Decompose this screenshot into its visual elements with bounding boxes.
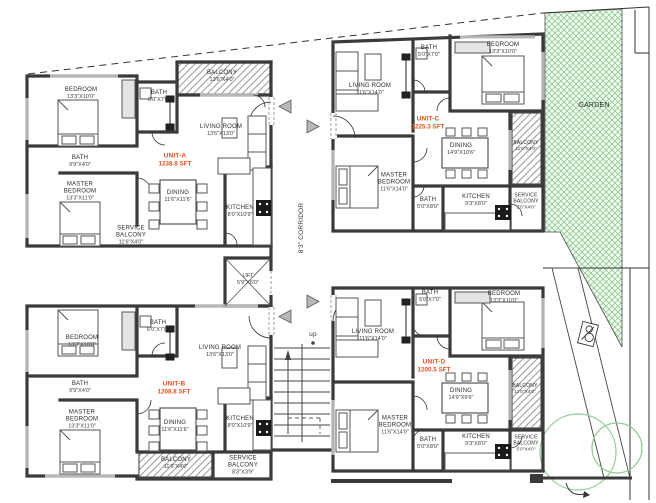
balcony-unit-d <box>512 358 541 428</box>
dining-table <box>442 128 488 178</box>
dining-table <box>442 373 488 423</box>
bed <box>482 56 524 104</box>
staircase <box>274 341 330 442</box>
wardrobe <box>455 292 490 303</box>
bed <box>60 202 100 246</box>
balcony-unit-b <box>139 453 212 477</box>
bed <box>58 100 98 146</box>
floor-plan-drawing <box>0 0 656 503</box>
bed <box>60 430 100 474</box>
sofa <box>218 346 266 404</box>
unit-d-entry-arrow <box>307 295 319 308</box>
washbasin <box>416 294 427 305</box>
washbasin <box>416 48 427 59</box>
stove <box>495 205 511 220</box>
washbasin <box>140 316 151 327</box>
door-openings <box>268 97 337 335</box>
bed <box>482 302 524 350</box>
stove <box>256 420 271 436</box>
floor-plan-canvas: UNIT-A1238.8 SFT BEDROOM13'3"X10'0" BATH… <box>0 0 656 503</box>
unit-b-entry-arrow <box>279 310 291 323</box>
wardrobe <box>122 312 135 350</box>
sofa <box>336 52 381 111</box>
washbasin <box>140 88 151 99</box>
wardrobe <box>122 80 135 118</box>
entry-markers <box>279 100 319 323</box>
dining-table <box>149 408 207 451</box>
lift <box>225 258 271 306</box>
bed <box>58 310 98 356</box>
sofa <box>218 116 266 174</box>
balcony-unit-c <box>512 113 541 184</box>
unit-a-entry-arrow <box>279 100 291 113</box>
wardrobe <box>455 42 490 53</box>
bed <box>336 166 378 208</box>
stove <box>495 444 511 459</box>
sofa <box>336 298 381 357</box>
dining-table <box>149 180 207 229</box>
balcony-unit-a <box>178 63 270 94</box>
entry-arrow <box>566 483 584 495</box>
stove <box>256 200 271 216</box>
bed <box>336 410 378 452</box>
unit-c-entry-arrow <box>307 120 319 133</box>
